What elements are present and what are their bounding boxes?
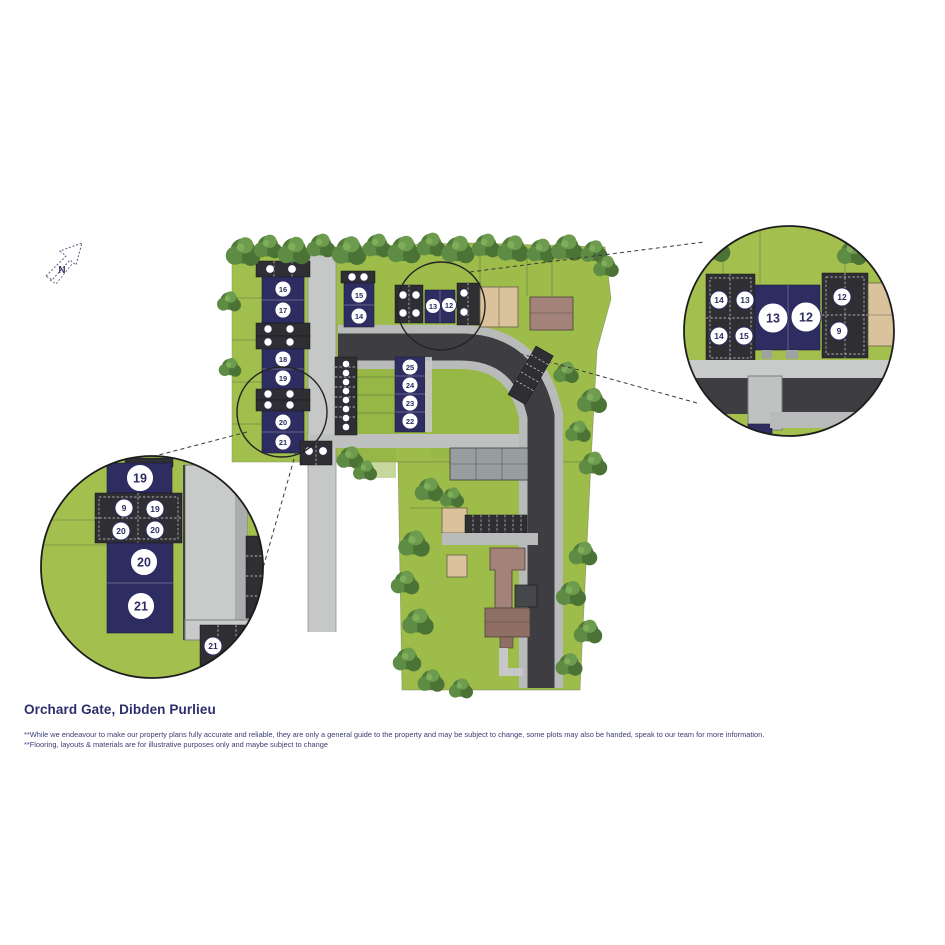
svg-text:20: 20 [279,418,287,427]
parking-space-marker [342,369,349,376]
callout-plot-20-marker[interactable]: 20 [131,549,158,576]
parking-space-marker [412,309,420,317]
tree [417,233,446,257]
parking-space-marker [399,309,407,317]
site-plan-page: 16 17 18 19 20 21 15 14 [0,0,945,945]
tree [388,236,421,263]
plot-25-marker[interactable]: 25 [402,359,418,375]
tan-outbuilding [442,508,467,533]
tree [332,236,367,265]
parking-space-marker [342,423,349,430]
parking-space-marker [360,273,368,281]
svg-text:22: 22 [406,417,414,426]
parking-space-marker [399,291,407,299]
callout-parking-21-marker: 21 [204,637,222,655]
tree [472,234,501,258]
callout-parking-marker: 9 [830,322,848,340]
parking-space-marker [264,390,272,398]
plot-21-marker[interactable]: 21 [275,434,291,450]
north-arrow: N [46,243,82,284]
callout-parking-marker: 19 [146,500,164,518]
svg-text:24: 24 [406,381,415,390]
court-apron [442,533,538,545]
parking-block [300,441,332,465]
callout-parking-marker: 20 [112,522,130,540]
callout-sidewalk [683,360,905,378]
svg-text:19: 19 [133,472,147,486]
callout-plot-19-marker[interactable]: 19 [127,465,154,492]
callout-parking-marker: 20 [146,521,164,539]
svg-text:25: 25 [406,363,414,372]
callout-plot-13-marker[interactable]: 13 [758,303,788,333]
parking-space-marker [342,378,349,385]
parking-space-marker [319,447,327,455]
callout-plot-21-marker[interactable]: 21 [128,593,155,620]
disclaimer-line-1: **While we endeavour to make our propert… [24,730,924,740]
svg-text:23: 23 [406,399,414,408]
plot-12-marker[interactable]: 12 [442,298,457,313]
parking-space-marker [342,405,349,412]
callout-parking-marker: 15 [735,327,753,345]
svg-text:21: 21 [134,600,148,614]
svg-text:13: 13 [740,295,750,305]
svg-text:9: 9 [837,326,842,336]
plot-22-marker[interactable]: 22 [402,413,418,429]
plot-24-marker[interactable]: 24 [402,377,418,393]
parking-space-marker [264,325,272,333]
page-title: Orchard Gate, Dibden Purlieu [24,702,216,717]
plot-17-marker[interactable]: 17 [275,302,291,318]
svg-text:18: 18 [279,355,287,364]
parking-space-marker [286,325,294,333]
svg-text:13: 13 [429,302,437,311]
parking-space-marker [264,338,272,346]
plot-19-marker[interactable]: 19 [275,370,291,386]
svg-text:12: 12 [445,301,453,310]
parking-space-marker [266,265,274,273]
parking-space-marker [342,387,349,394]
svg-text:20: 20 [150,525,160,535]
callout-parking-marker: 14 [710,291,728,309]
svg-text:16: 16 [279,285,287,294]
plot-13-marker[interactable]: 13 [426,299,441,314]
plot-20-marker[interactable]: 20 [275,414,291,430]
svg-text:12: 12 [799,311,813,325]
svg-text:14: 14 [355,312,364,321]
svg-text:15: 15 [355,291,363,300]
svg-text:15: 15 [739,331,749,341]
site-plan: 16 17 18 19 20 21 15 14 [217,233,619,699]
svg-text:21: 21 [208,641,218,651]
plot-14-marker[interactable]: 14 [351,308,367,324]
tan-annex [447,555,467,577]
disclaimer: **While we endeavour to make our propert… [24,730,924,750]
svg-text:19: 19 [279,374,287,383]
brown-building-south [485,608,530,637]
svg-text:20: 20 [137,556,151,570]
tree [527,239,556,263]
plot-16-marker[interactable]: 16 [275,281,291,297]
callout-right: 14 13 14 15 13 12 12 9 [683,226,906,442]
tree [497,235,529,261]
svg-text:21: 21 [279,438,287,447]
svg-text:20: 20 [116,526,126,536]
tree [363,234,392,258]
parking-space-marker [460,289,468,297]
parking-court [465,515,527,533]
plot-18-marker[interactable]: 18 [275,351,291,367]
disclaimer-line-2: **Flooring, layouts & materials are for … [24,740,924,750]
callout-parking [95,493,182,543]
callout-parking-marker: 14 [710,327,728,345]
parking-space-marker [460,308,468,316]
porch [500,637,513,648]
callout-parking-marker: 12 [833,288,851,306]
dark-outbuilding [515,585,537,607]
parking-space-marker [264,401,272,409]
svg-text:12: 12 [837,292,847,302]
parking-space-marker [342,360,349,367]
parking-space-marker [348,273,356,281]
svg-text:13: 13 [766,312,780,326]
tree [278,237,311,264]
svg-text:17: 17 [279,306,287,315]
parking-space-marker [412,291,420,299]
tree [442,236,475,263]
tree [307,234,336,258]
svg-text:9: 9 [122,503,127,513]
plots-mid-top: 15 14 [341,271,375,327]
parking-space-marker [286,338,294,346]
access-lane [308,434,534,448]
callout-left: 19 9 19 20 20 20 21 21 [41,456,268,678]
brown-building [530,297,573,330]
parking-space-marker [342,396,349,403]
tree [551,234,583,260]
svg-text:14: 14 [714,331,724,341]
site-plan-canvas: 16 17 18 19 20 21 15 14 [0,0,945,945]
parking-space-marker [342,414,349,421]
callout-parking-marker: 9 [115,499,133,517]
north-label: N [58,265,65,276]
plot-15-marker[interactable]: 15 [351,287,367,303]
footpath [499,668,523,676]
parking-space-marker [288,265,296,273]
svg-text:19: 19 [150,504,160,514]
parking-space-marker [286,390,294,398]
svg-text:14: 14 [714,295,724,305]
callout-parking-marker: 13 [736,291,754,309]
plot-23-marker[interactable]: 23 [402,395,418,411]
callout-plot-12-marker[interactable]: 12 [791,302,821,332]
parking-space-marker [286,401,294,409]
